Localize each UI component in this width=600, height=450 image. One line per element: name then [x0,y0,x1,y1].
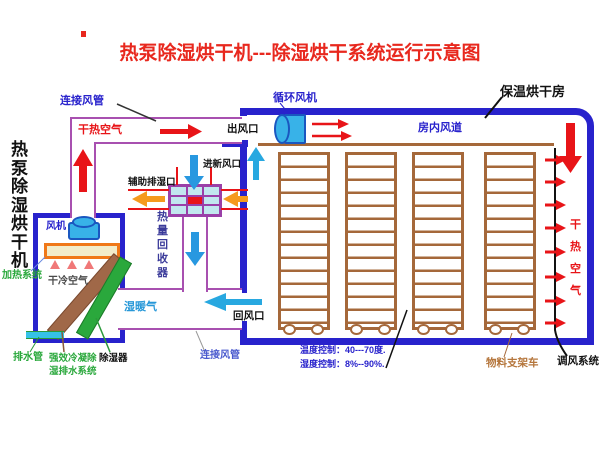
heating-system-label: 加热系统 [2,270,42,281]
heat-recovery-cell [188,187,203,195]
heater-element [44,243,120,259]
rack-wheel-icon [283,324,296,335]
diagram-canvas: 热泵除湿烘干机---除湿烘干系统运行示意图 热泵除湿烘干机 [0,0,600,450]
temperature-control-label: 温度控制：40---70度. [300,346,386,356]
connect-duct-top-label: 连接风管 [60,95,104,107]
page-title: 热泵除湿烘干机---除湿烘干系统运行示意图 [0,44,600,65]
heat-recovery-cell [188,206,203,214]
material-rack-label: 物料支架车 [486,358,539,370]
aux-exhaust-port-label: 辅助排湿口 [128,178,176,188]
drain-pipe-icon [26,331,64,339]
drying-rack [278,152,330,330]
dehumidifier-label: 除湿器 [99,354,128,364]
rack-wheel-icon [417,324,430,335]
dry-hot-air-right-label: 干热空气 [570,214,584,302]
heat-recovery-cell [204,197,219,205]
rack-wheel-icon [489,324,502,335]
condensate-system-label-2: 湿排水系统 [49,367,97,377]
rack-wheel-icon [517,324,530,335]
circulation-fan-face-icon [274,114,290,144]
heat-recovery-cell [204,206,219,214]
machine-fan-label: 风机 [46,221,66,232]
circulation-fan-label: 循环风机 [273,92,317,104]
dry-cold-air-label: 干冷空气 [48,276,88,287]
air-outlet-label: 出风口 [227,124,259,136]
heat-recovery-cell [171,197,186,205]
rack-wheel-icon [445,324,458,335]
machine-side-title: 热泵除湿烘干机 [11,141,31,271]
drying-rack [345,152,397,330]
drain-pipe-label: 排水管 [13,352,43,363]
humidity-control-label: 湿度控制：8%--90%. [300,360,385,370]
machine-fan-top-icon [72,216,96,228]
drying-rack [484,152,536,330]
dry-hot-air-top-label: 干热空气 [78,124,122,136]
condensate-system-label-1: 强效冷凝除 [49,354,97,364]
rack-wheel-icon [378,324,391,335]
return-air-label: 回风口 [233,311,265,323]
fresh-air-channel [182,216,208,292]
heat-recovery-cell [171,206,186,214]
heat-recovery-core [168,184,222,217]
heat-recovery-cell [204,187,219,195]
left-arrow-icon-exhaust [132,191,165,207]
drying-rack [412,152,464,330]
machine-riser-duct [70,142,96,218]
fresh-air-inlet-label: 进新风口 [203,160,241,170]
room-duct-label: 房内风道 [418,122,462,134]
rack-wheel-icon [350,324,363,335]
heat-recovery-label: 热量回收器 [157,210,171,280]
red-speck-mark [81,31,86,37]
wet-warm-air-label: 湿暖气 [124,301,157,313]
insulated-room-label: 保温烘干房 [500,85,565,99]
heat-recovery-cell-hot [188,197,203,205]
rack-wheel-icon [311,324,324,335]
air-adjust-system-label: 调风系统 [557,356,599,368]
connect-duct-bottom-label: 连接风管 [200,350,240,361]
